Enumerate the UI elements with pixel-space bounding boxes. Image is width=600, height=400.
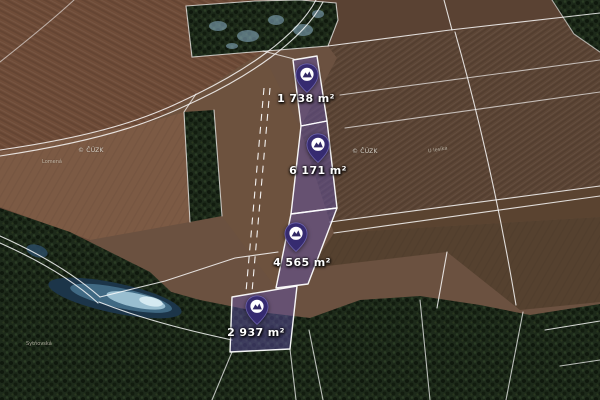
cuzk-watermark: © ČÚZK [352, 148, 378, 155]
parcel-marker[interactable] [306, 133, 330, 163]
satellite-basemap [0, 0, 600, 400]
place-label: Sytňovská [26, 341, 52, 347]
map-pin-icon [295, 63, 319, 93]
place-label: Lomená [42, 159, 62, 165]
parcel-marker[interactable] [245, 295, 269, 325]
cuzk-watermark: © ČÚZK [78, 147, 104, 154]
parcel-marker[interactable] [295, 63, 319, 93]
map-pin-icon [284, 222, 308, 252]
map-viewport[interactable]: © ČÚZK © ČÚZK Lomená U lesíka Sytňovská [0, 0, 600, 400]
map-pin-icon [245, 295, 269, 325]
map-pin-icon [306, 133, 330, 163]
parcel-marker[interactable] [284, 222, 308, 252]
